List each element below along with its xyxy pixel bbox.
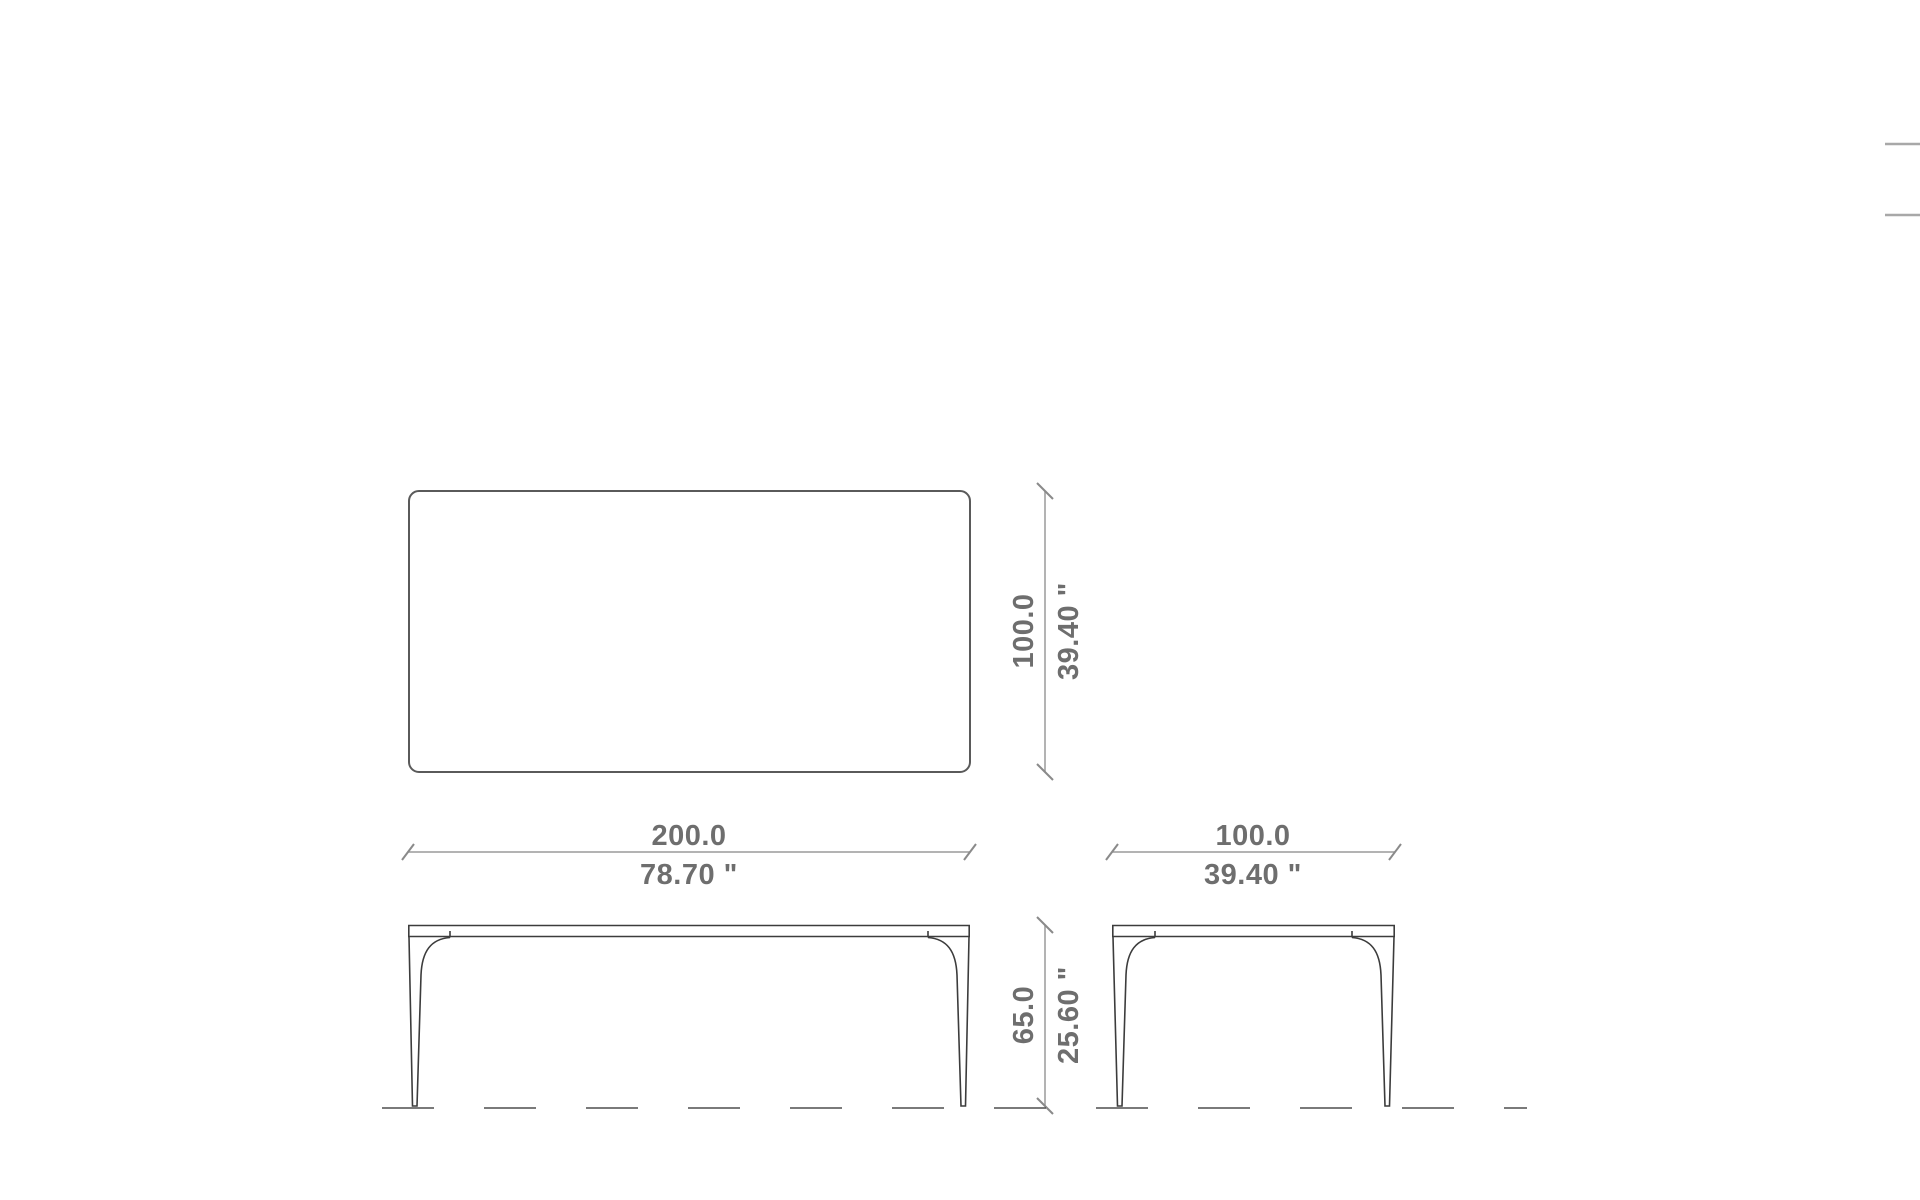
front-right-leg [928, 931, 969, 1106]
dimension-label-side-width-metric: 100.0 [1215, 820, 1290, 852]
dimension-label-height-metric: 65.0 [1008, 986, 1040, 1044]
dimension-side-width: 100.0 39.40 " [1106, 820, 1401, 891]
side-left-leg [1113, 931, 1155, 1106]
front-left-leg [409, 931, 450, 1106]
drawing-canvas: 100.0 39.40 " 200.0 78.70 " 100.0 39.40 … [0, 0, 1920, 1200]
dimension-label-top-depth-metric: 100.0 [1008, 593, 1040, 668]
side-right-leg [1352, 931, 1394, 1106]
dimension-label-side-width-imperial: 39.40 " [1204, 859, 1302, 891]
table-top-view-outline [409, 491, 970, 772]
table-front-elevation [408, 926, 970, 1107]
table-side-elevation [1112, 926, 1395, 1107]
dimension-height: 65.0 25.60 " [1008, 917, 1085, 1114]
table-technical-drawing: 100.0 39.40 " 200.0 78.70 " 100.0 39.40 … [0, 0, 1920, 1200]
dimension-label-top-width-metric: 200.0 [651, 820, 726, 852]
dimension-top-depth: 100.0 39.40 " [1008, 483, 1085, 780]
dimension-label-top-depth-imperial: 39.40 " [1053, 582, 1085, 680]
dimension-top-width: 200.0 78.70 " [402, 820, 976, 891]
dimension-label-height-imperial: 25.60 " [1053, 966, 1085, 1064]
dimension-label-top-width-imperial: 78.70 " [640, 859, 738, 891]
front-tabletop [408, 926, 970, 937]
